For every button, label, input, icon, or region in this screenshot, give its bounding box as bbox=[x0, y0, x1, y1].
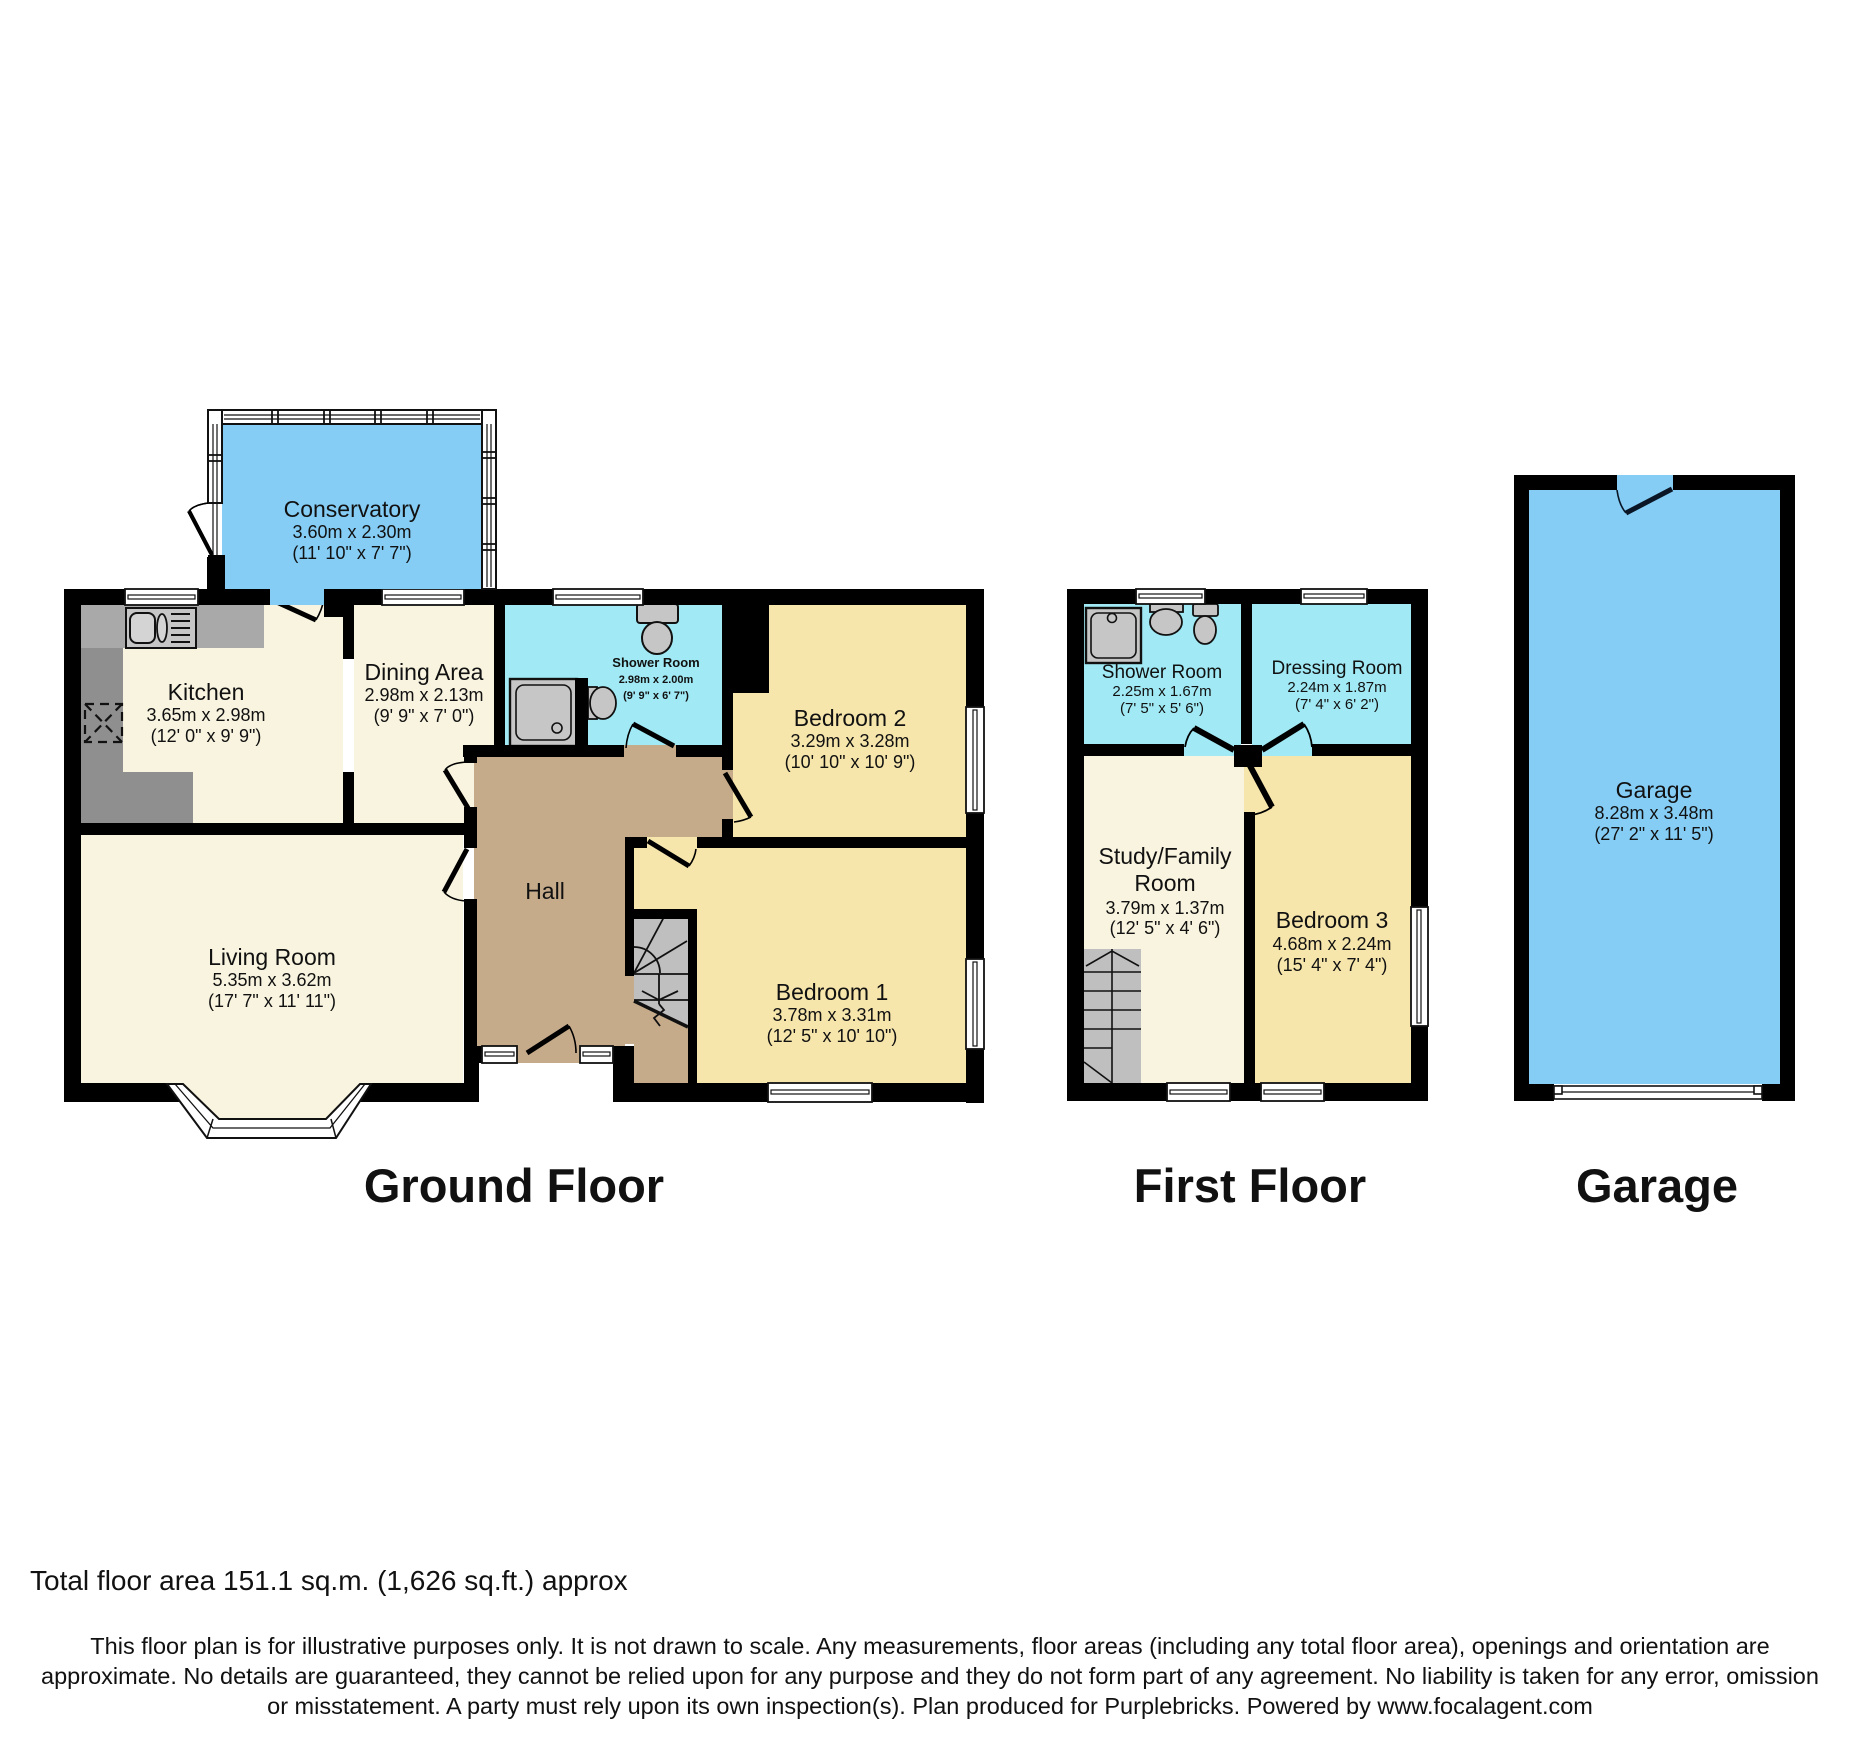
svg-text:4.68m x 2.24m: 4.68m x 2.24m bbox=[1272, 934, 1391, 954]
svg-text:2.25m x 1.67m: 2.25m x 1.67m bbox=[1112, 683, 1211, 700]
svg-text:Shower Room: Shower Room bbox=[1102, 662, 1222, 683]
svg-text:Living Room: Living Room bbox=[208, 944, 336, 970]
svg-text:Garage: Garage bbox=[1616, 777, 1693, 803]
svg-text:(7' 5" x 5' 6"): (7' 5" x 5' 6") bbox=[1120, 700, 1204, 717]
svg-text:Garage: Garage bbox=[1576, 1159, 1738, 1212]
svg-text:(17' 7" x 11' 11"): (17' 7" x 11' 11") bbox=[208, 991, 336, 1011]
svg-text:approximate. No details are gu: approximate. No details are guaranteed, … bbox=[41, 1663, 1819, 1689]
svg-text:Bedroom 2: Bedroom 2 bbox=[794, 705, 907, 731]
svg-text:Bedroom 1: Bedroom 1 bbox=[776, 979, 889, 1005]
svg-text:2.24m x 1.87m: 2.24m x 1.87m bbox=[1287, 679, 1386, 696]
svg-text:(9' 9" x 7' 0"): (9' 9" x 7' 0") bbox=[374, 706, 475, 726]
svg-text:3.29m x 3.28m: 3.29m x 3.28m bbox=[790, 731, 909, 751]
svg-text:3.79m x 1.37m: 3.79m x 1.37m bbox=[1105, 898, 1224, 918]
svg-text:Bedroom 3: Bedroom 3 bbox=[1276, 907, 1389, 933]
svg-text:(10' 10" x 10' 9"): (10' 10" x 10' 9") bbox=[785, 752, 916, 772]
svg-text:8.28m x 3.48m: 8.28m x 3.48m bbox=[1594, 803, 1713, 823]
svg-text:Kitchen: Kitchen bbox=[168, 679, 245, 705]
svg-text:3.65m x 2.98m: 3.65m x 2.98m bbox=[146, 705, 265, 725]
svg-text:Total floor area 151.1 sq.m. (: Total floor area 151.1 sq.m. (1,626 sq.f… bbox=[30, 1565, 628, 1596]
svg-text:3.60m x 2.30m: 3.60m x 2.30m bbox=[292, 522, 411, 542]
svg-text:Study/Family: Study/Family bbox=[1099, 843, 1232, 869]
svg-text:or misstatement. A party must: or misstatement. A party must rely upon … bbox=[267, 1693, 1593, 1719]
svg-text:This floor plan is for illustr: This floor plan is for illustrative purp… bbox=[90, 1633, 1769, 1659]
svg-text:(15' 4" x 7' 4"): (15' 4" x 7' 4") bbox=[1277, 955, 1388, 975]
svg-text:(12' 0" x 9' 9"): (12' 0" x 9' 9") bbox=[151, 726, 262, 746]
svg-text:(27' 2" x 11' 5"): (27' 2" x 11' 5") bbox=[1594, 824, 1713, 844]
svg-text:5.35m x 3.62m: 5.35m x 3.62m bbox=[212, 970, 331, 990]
svg-text:(11' 10" x 7' 7"): (11' 10" x 7' 7") bbox=[292, 543, 411, 563]
svg-text:(7' 4" x 6' 2"): (7' 4" x 6' 2") bbox=[1295, 696, 1379, 713]
svg-text:3.78m x 3.31m: 3.78m x 3.31m bbox=[772, 1005, 891, 1025]
svg-text:(12' 5" x 10' 10"): (12' 5" x 10' 10") bbox=[767, 1026, 898, 1046]
svg-text:Dining Area: Dining Area bbox=[365, 659, 484, 685]
svg-text:(12' 5" x 4' 6"): (12' 5" x 4' 6") bbox=[1110, 918, 1221, 938]
svg-text:(9' 9" x 6' 7"): (9' 9" x 6' 7") bbox=[623, 690, 689, 702]
svg-text:2.98m x 2.00m: 2.98m x 2.00m bbox=[619, 674, 694, 686]
svg-text:Hall: Hall bbox=[525, 878, 565, 904]
svg-text:First Floor: First Floor bbox=[1134, 1159, 1366, 1212]
svg-text:Ground Floor: Ground Floor bbox=[364, 1159, 664, 1212]
svg-text:Shower Room: Shower Room bbox=[612, 655, 699, 670]
svg-text:Conservatory: Conservatory bbox=[284, 496, 421, 522]
svg-text:Room: Room bbox=[1134, 870, 1195, 896]
svg-text:Dressing Room: Dressing Room bbox=[1272, 658, 1403, 679]
svg-text:2.98m x 2.13m: 2.98m x 2.13m bbox=[364, 685, 483, 705]
